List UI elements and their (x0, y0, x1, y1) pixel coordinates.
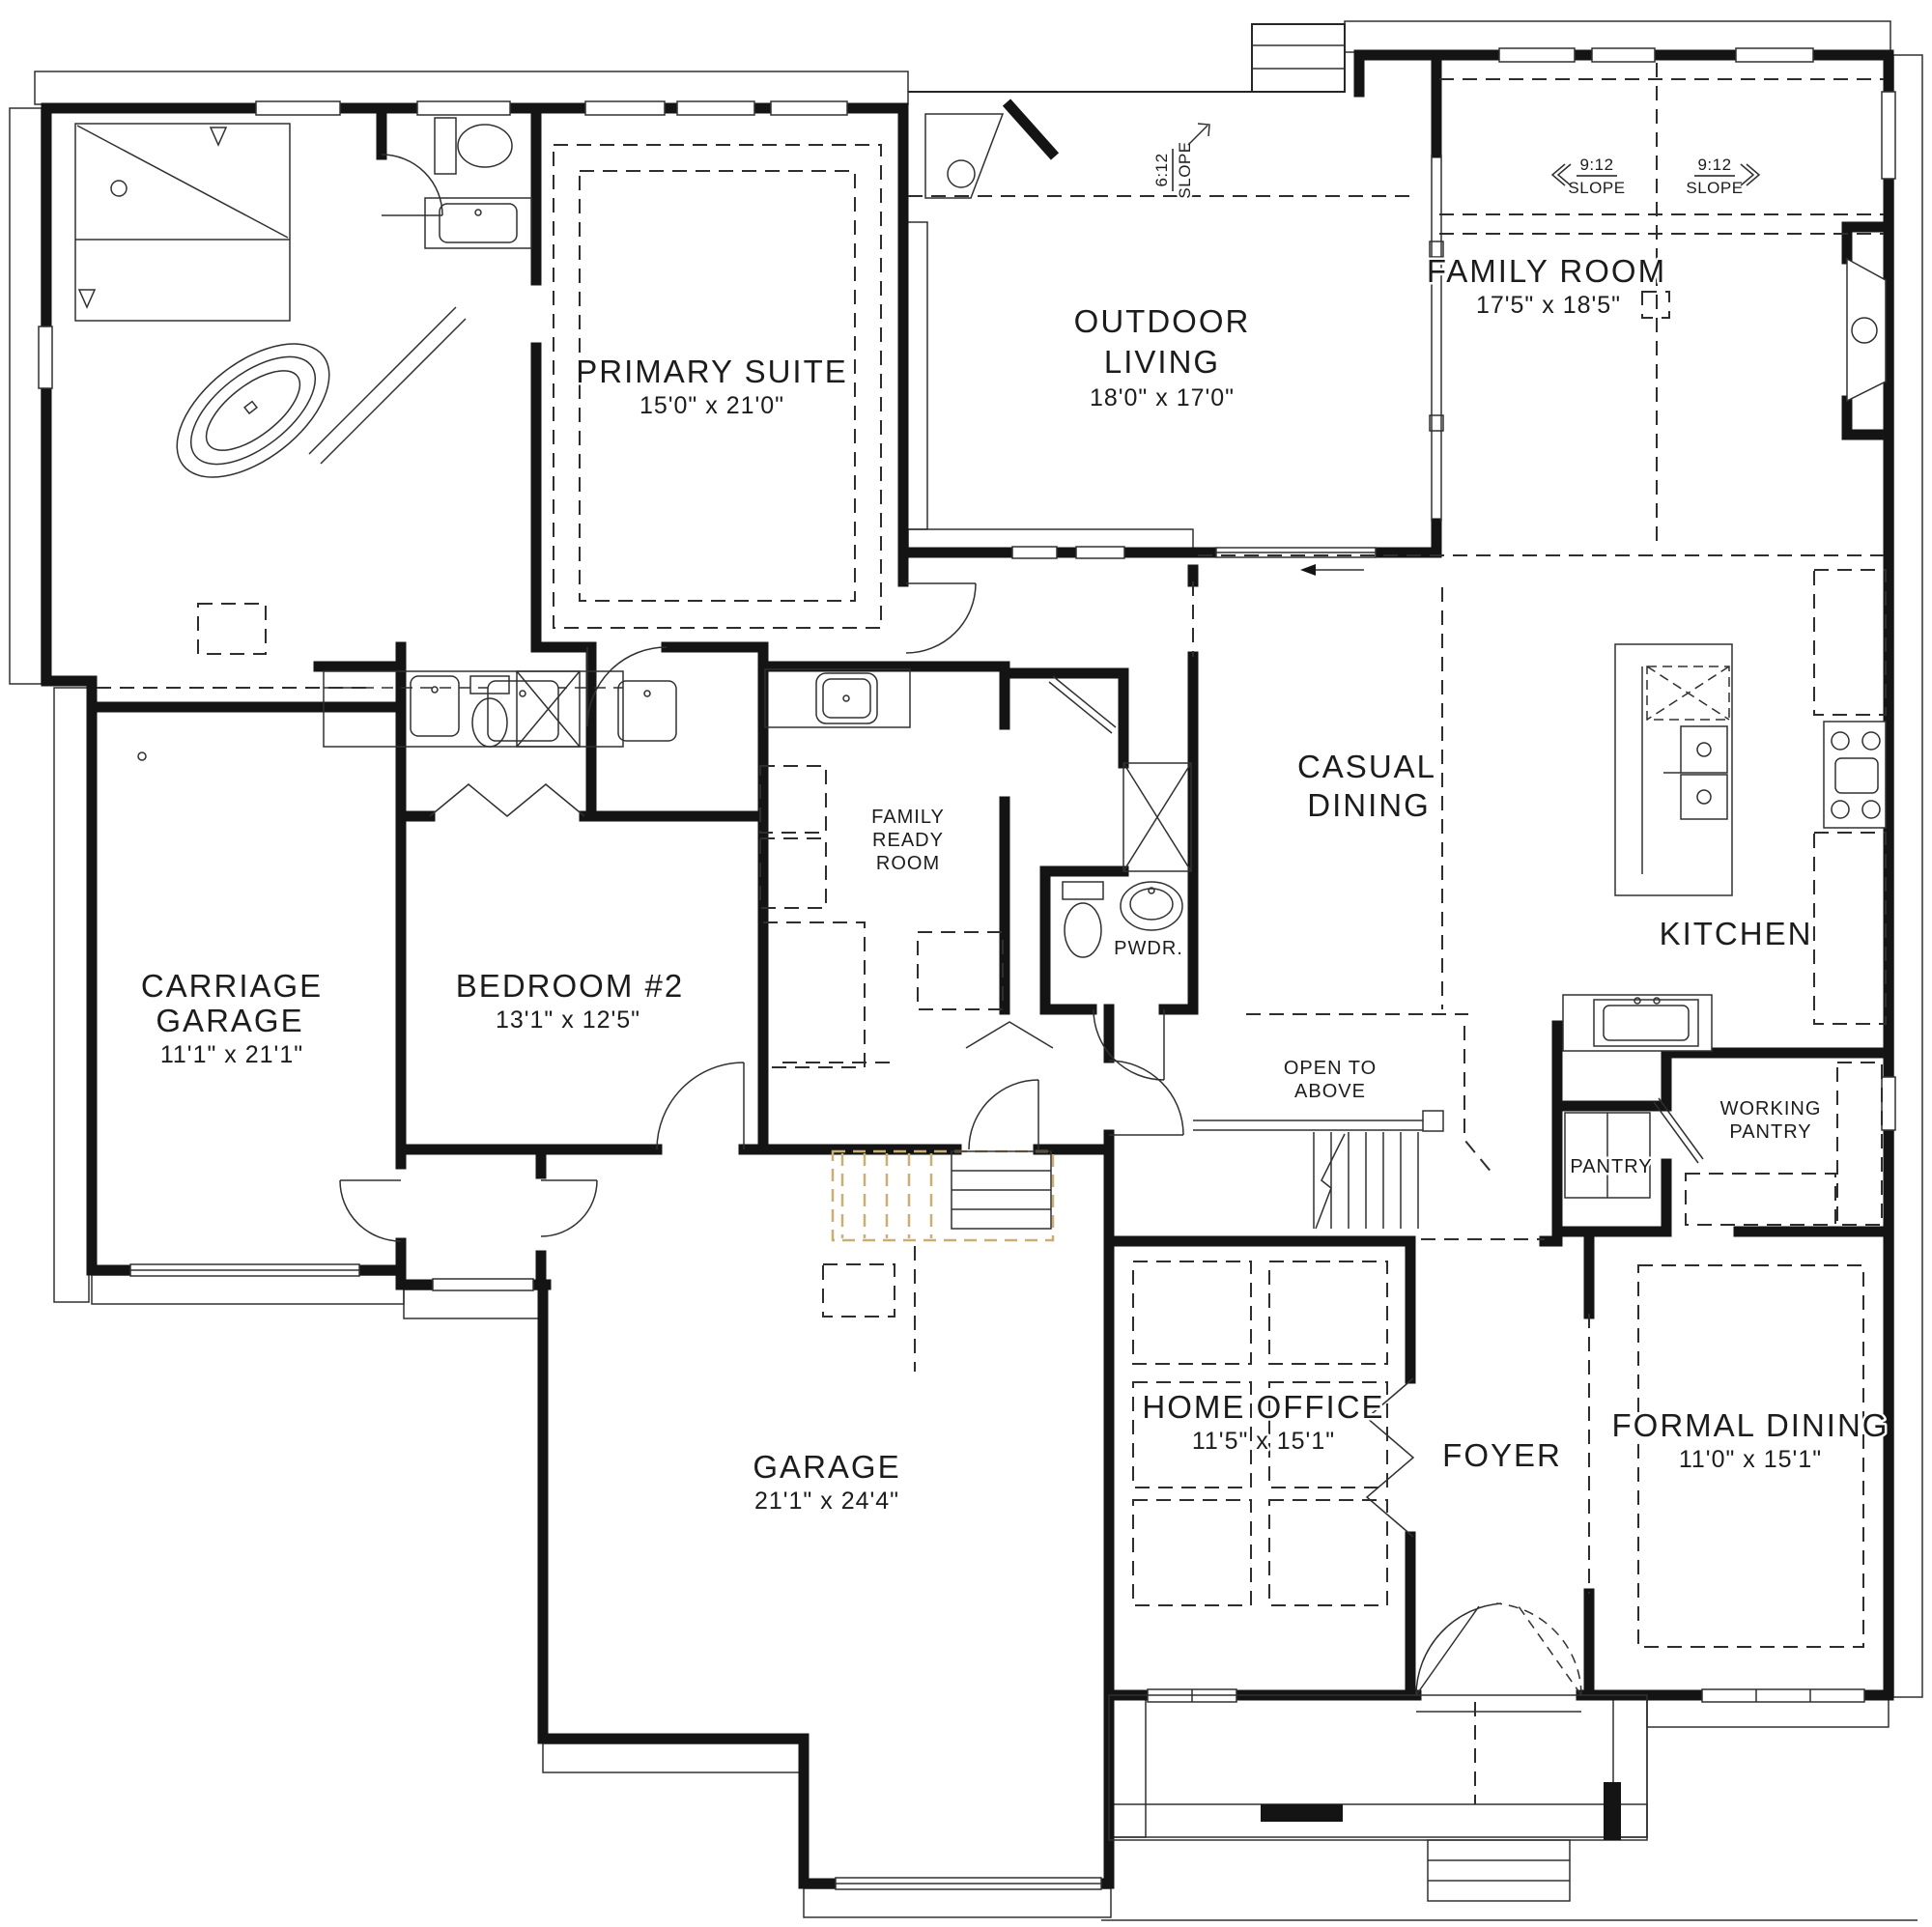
svg-text:SLOPE: SLOPE (1568, 179, 1625, 197)
dims-primary-suite: 15'0" x 21'0" (639, 392, 784, 419)
entry-arrow (1300, 564, 1364, 576)
label-casual-2: DINING (1307, 787, 1431, 823)
label-carriage-2: GARAGE (156, 1003, 303, 1038)
label-working-2: PANTRY (1729, 1121, 1811, 1143)
label-pantry: PANTRY (1570, 1156, 1652, 1177)
kitchen-island (1615, 644, 1732, 895)
slope-ratio: 6:12 (1152, 153, 1171, 186)
outdoor-fireplace (925, 102, 1055, 198)
label-outdoor-2: LIVING (1104, 344, 1220, 380)
front-porch (1101, 1695, 1918, 1920)
label-ready-3: ROOM (876, 853, 940, 874)
svg-text:9:12: 9:12 (1579, 156, 1613, 174)
dims-formal-dining: 11'0" x 15'1" (1679, 1446, 1822, 1473)
floor-plan-canvas: 6:12 SLOPE 9:12 SLOPE 9:12 SLOPE PRIMARY… (0, 0, 1932, 1927)
floor-plan-page: 6:12 SLOPE 9:12 SLOPE 9:12 SLOPE PRIMARY… (0, 0, 1932, 1927)
chimney (1252, 24, 1345, 92)
label-open-above-1: OPEN TO (1284, 1058, 1377, 1079)
kitchen-sink-counter (1563, 995, 1712, 1051)
label-powder: PWDR. (1114, 938, 1183, 959)
family-room-fireplace (1847, 259, 1886, 401)
label-ready-2: READY (872, 830, 944, 851)
label-casual-1: CASUAL (1297, 749, 1436, 784)
kitchen-range (1824, 722, 1886, 828)
label-family-room: FAMILY ROOM (1427, 253, 1666, 289)
label-outdoor-1: OUTDOOR (1074, 303, 1251, 339)
label-primary-suite: PRIMARY SUITE (576, 354, 848, 389)
pantry-shelves (1565, 1113, 1650, 1198)
powder-fixtures (1063, 763, 1191, 957)
label-kitchen: KITCHEN (1660, 916, 1813, 951)
label-bedroom2: BEDROOM #2 (456, 968, 684, 1004)
slope-6-12: 6:12 SLOPE (1152, 124, 1209, 199)
svg-text:9:12: 9:12 (1697, 156, 1731, 174)
dims-family-room: 17'5" x 18'5" (1476, 292, 1621, 319)
label-working-1: WORKING (1720, 1098, 1822, 1119)
basement-stair (833, 1151, 1053, 1240)
slope-word: SLOPE (1176, 141, 1194, 198)
dims-bedroom2: 13'1" x 12'5" (496, 1006, 640, 1034)
slope-9-12-right: 9:12 SLOPE (1686, 156, 1759, 197)
label-open-above-2: ABOVE (1294, 1081, 1366, 1102)
label-formal-dining: FORMAL DINING (1612, 1407, 1889, 1443)
primary-wc-toilet (435, 118, 512, 174)
svg-text:SLOPE: SLOPE (1686, 179, 1743, 197)
label-home-office: HOME OFFICE (1142, 1389, 1384, 1425)
dims-outdoor: 18'0" x 17'0" (1090, 384, 1235, 411)
main-stair (1193, 1111, 1443, 1229)
carriage-floor-drain (138, 752, 146, 760)
label-foyer: FOYER (1442, 1437, 1562, 1473)
label-carriage-1: CARRIAGE (141, 968, 323, 1004)
laundry-sink (765, 669, 910, 727)
primary-tub (154, 307, 466, 503)
label-ready-1: FAMILY (871, 807, 945, 828)
dims-carriage: 11'1" x 21'1" (160, 1041, 303, 1068)
dims-home-office: 11'5" x 15'1" (1192, 1428, 1335, 1455)
front-steps (1428, 1840, 1570, 1901)
label-garage: GARAGE (753, 1449, 900, 1485)
slope-9-12-left: 9:12 SLOPE (1552, 156, 1626, 197)
dims-garage: 21'1" x 24'4" (754, 1488, 899, 1515)
primary-shower (75, 124, 290, 321)
